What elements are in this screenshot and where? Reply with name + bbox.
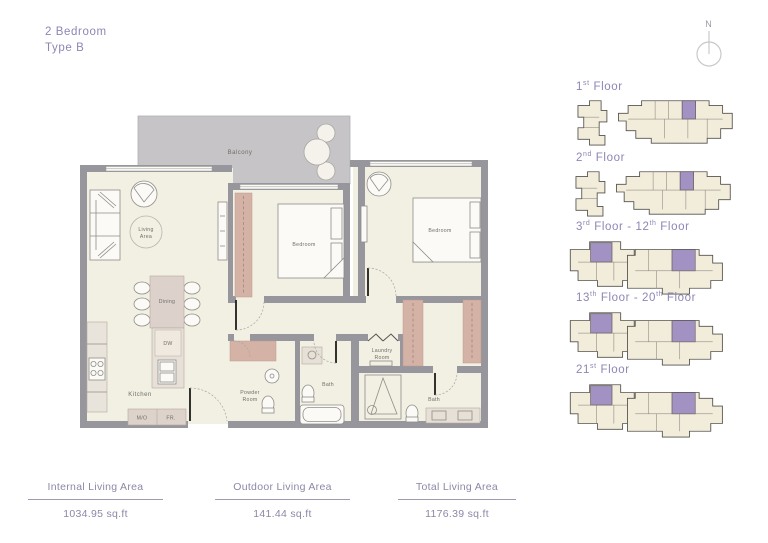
stat-outdoor-living-area: Outdoor Living Area 141.44 sq.ft	[215, 481, 350, 520]
stat-label: Total Living Area	[398, 481, 516, 500]
stat-value: 1034.95 sq.ft	[28, 508, 163, 520]
stat-value: 1176.39 sq.ft	[398, 508, 516, 520]
bedroom-1-label: Bedroom	[292, 242, 315, 248]
kitchen-counter	[87, 322, 107, 412]
floor-label-1: 1st Floor	[576, 80, 623, 93]
north-compass-icon: N	[686, 16, 732, 70]
sofa	[90, 190, 120, 260]
living-label-1: Living	[138, 227, 153, 233]
dining-table: Dining	[134, 276, 200, 328]
bath-1-label: Bath	[322, 382, 334, 388]
armchair	[131, 181, 157, 207]
floor-label-2: 2nd Floor	[576, 151, 625, 164]
living-label-2: Area	[140, 234, 152, 240]
page: { "header": { "title_line1": "2 Bedroom"…	[0, 0, 768, 543]
kitchen-island: DW	[152, 328, 184, 388]
stat-value: 141.44 sq.ft	[215, 508, 350, 520]
key-plan-floor-2	[570, 165, 742, 219]
tv-console	[218, 202, 227, 260]
title-line-1: 2 Bedroom	[45, 24, 107, 40]
stat-total-living-area: Total Living Area 1176.39 sq.ft	[398, 481, 516, 520]
fridge-label: FR.	[166, 416, 175, 422]
dishwasher-label: DW	[163, 341, 172, 347]
kitchen-label: Kitchen	[128, 392, 152, 398]
page-title: 2 Bedroom Type B	[45, 24, 107, 56]
floor-label-21: 21st Floor	[576, 363, 630, 376]
stat-internal-living-area: Internal Living Area 1034.95 sq.ft	[28, 481, 163, 520]
title-line-2: Type B	[45, 40, 107, 56]
floor-plan: Balcony	[80, 108, 492, 460]
floor-label-3-12: 3rd Floor - 12th Floor	[576, 220, 690, 233]
dining-label: Dining	[159, 299, 176, 305]
key-plan-floor-1	[572, 94, 744, 148]
laundry-label-2: Room	[374, 355, 389, 361]
balcony-label: Balcony	[228, 150, 253, 156]
laundry-label-1: Laundry	[372, 348, 393, 354]
kitchen-appliances: M/O FR.	[128, 409, 186, 425]
powder-room-label-1: Powder	[240, 390, 259, 396]
bath-2-label: Bath	[428, 397, 440, 403]
key-plan-floor-21	[566, 377, 748, 439]
stat-label: Internal Living Area	[28, 481, 163, 500]
floor-label-13-20: 13th Floor - 20th Floor	[576, 291, 696, 304]
bedroom-2-label: Bedroom	[428, 228, 451, 234]
microwave-oven-label: M/O	[137, 416, 148, 422]
powder-room-label-2: Room	[242, 397, 257, 403]
compass-north-label: N	[705, 19, 713, 29]
key-plan-floor-13-20	[566, 305, 748, 367]
key-plan-floor-3-12	[566, 234, 748, 296]
stat-label: Outdoor Living Area	[215, 481, 350, 500]
